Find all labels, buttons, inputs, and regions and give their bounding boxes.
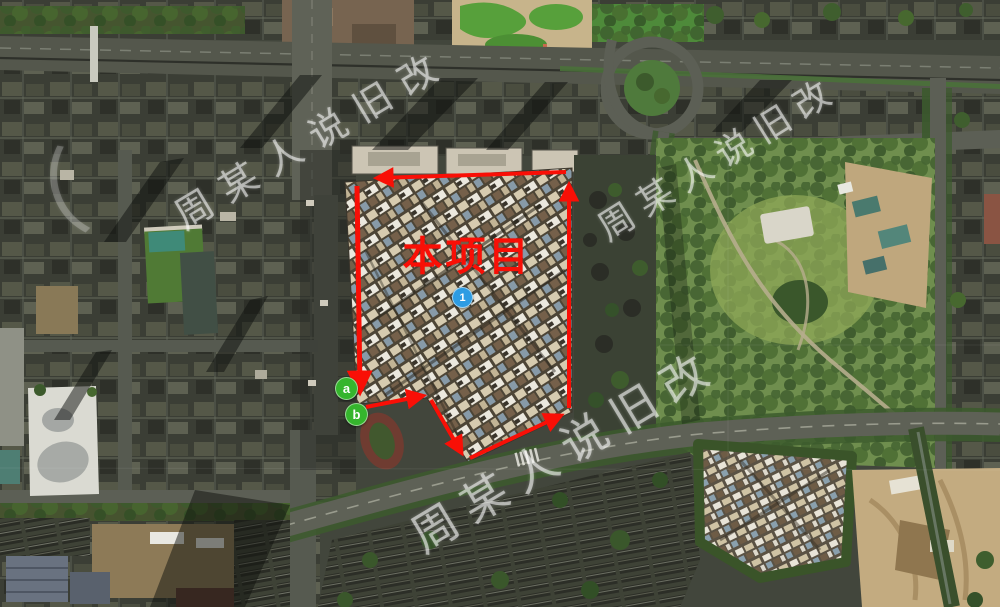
marker-1-label: 1: [459, 292, 465, 304]
map-marker-a[interactable]: a: [335, 377, 358, 400]
bottom-left-blocks: [0, 490, 290, 607]
map-marker-b[interactable]: b: [345, 403, 368, 426]
map-marker-1[interactable]: 1: [452, 287, 473, 308]
bottom-right-village: [698, 444, 852, 578]
satellite-imagery: [0, 0, 1000, 607]
east-apartments: [574, 155, 658, 435]
marker-a-label: a: [343, 381, 350, 396]
marker-b-label: b: [353, 407, 361, 422]
project-label: 本项目: [403, 224, 532, 282]
satellite-map[interactable]: （ 周某人说旧改 周某人说旧改 周某人说旧改 本项目 1 a b: [0, 0, 1000, 607]
